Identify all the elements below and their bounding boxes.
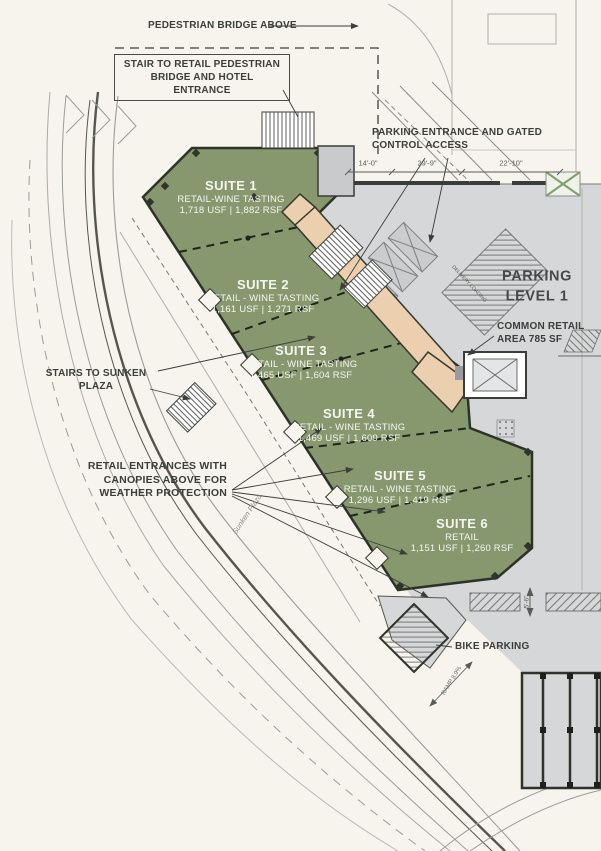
parking-level-label: PARKING LEVEL 1 [502, 267, 572, 306]
common-retail-label: COMMON RETAIL AREA 785 SF [497, 320, 592, 346]
stair-to-retail-label: STAIR TO RETAIL PEDESTRIAN BRIDGE AND HO… [114, 54, 290, 101]
retail-entrances-label: RETAIL ENTRANCES WITH CANOPIES ABOVE FOR… [55, 460, 227, 501]
dimension-5-6: 5'-6" [524, 596, 531, 609]
parking-entrance-label: PARKING ENTRANCE AND GATED CONTROL ACCES… [372, 126, 562, 152]
top-dimension-line [345, 169, 563, 175]
pedestrian-bridge-label: PEDESTRIAN BRIDGE ABOVE [148, 19, 297, 32]
elevator-icon [455, 352, 526, 398]
suite-2-label: SUITE 2 RETAIL - WINE TASTING 1,161 USF … [207, 277, 320, 315]
bike-parking-label: BIKE PARKING [455, 640, 529, 653]
dimension-29-9: 29'-9" [417, 159, 436, 168]
suite-5-label: SUITE 5 RETAIL - WINE TASTING 1,296 USF … [344, 468, 457, 506]
stairs-sunken-plaza-label: STAIRS TO SUNKEN PLAZA [36, 367, 156, 393]
driveway-lines [388, 0, 576, 184]
suite-6-label: SUITE 6 RETAIL 1,151 USF | 1,260 RSF [411, 516, 514, 554]
sunken-plaza-stair-icon [167, 383, 216, 432]
bridge-stair-icon [262, 112, 314, 148]
suite-4-label: SUITE 4 RETAIL - WINE TASTING 1,469 USF … [293, 406, 406, 444]
dimension-14-0: 14'-0" [358, 159, 377, 168]
floor-plan: PEDESTRIAN BRIDGE ABOVE STAIR TO RETAIL … [0, 0, 601, 851]
dimension-22-10: 22'-10" [499, 159, 522, 168]
suite-1-label: SUITE 1 RETAIL-WINE TASTING 1,718 USF | … [177, 178, 284, 216]
upper-elevator-icon [546, 172, 580, 196]
suite-3-label: SUITE 3 RETAIL - WINE TASTING 1,465 USF … [245, 343, 358, 381]
